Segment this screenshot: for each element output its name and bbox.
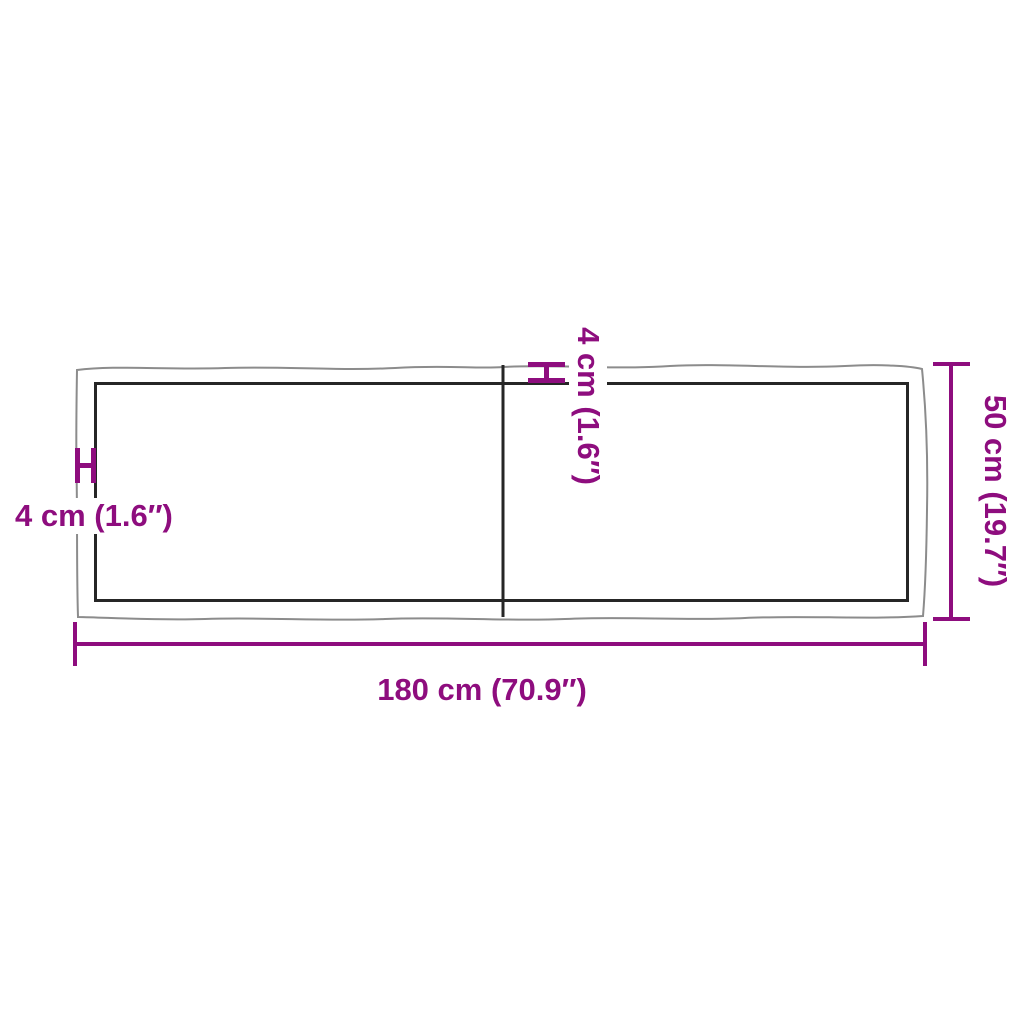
dimension-diagram: 180 cm (70.9″) 4 cm (1.6″) 4 cm (1.6″) 5… <box>0 0 1024 1024</box>
length-dimension <box>75 622 925 666</box>
length-dimension-label: 180 cm (70.9″) <box>262 672 702 708</box>
depth-dimension <box>933 364 970 619</box>
thickness-bracket-top <box>528 362 565 383</box>
depth-dimension-label: 50 cm (19.7″) <box>976 371 1014 611</box>
thickness-left-dimension-label: 4 cm (1.6″) <box>15 498 173 534</box>
thickness-top-dimension-label: 4 cm (1.6″) <box>569 286 607 526</box>
thickness-bracket-left <box>75 448 96 483</box>
